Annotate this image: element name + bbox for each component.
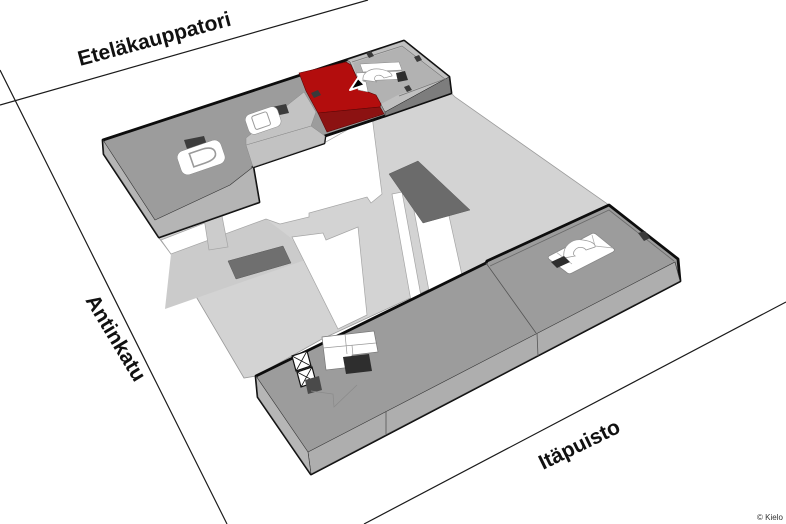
svg-text:Antinkatu: Antinkatu bbox=[81, 291, 151, 386]
svg-text:© Kielo: © Kielo bbox=[757, 513, 783, 522]
svg-text:Itäpuisto: Itäpuisto bbox=[535, 415, 624, 474]
